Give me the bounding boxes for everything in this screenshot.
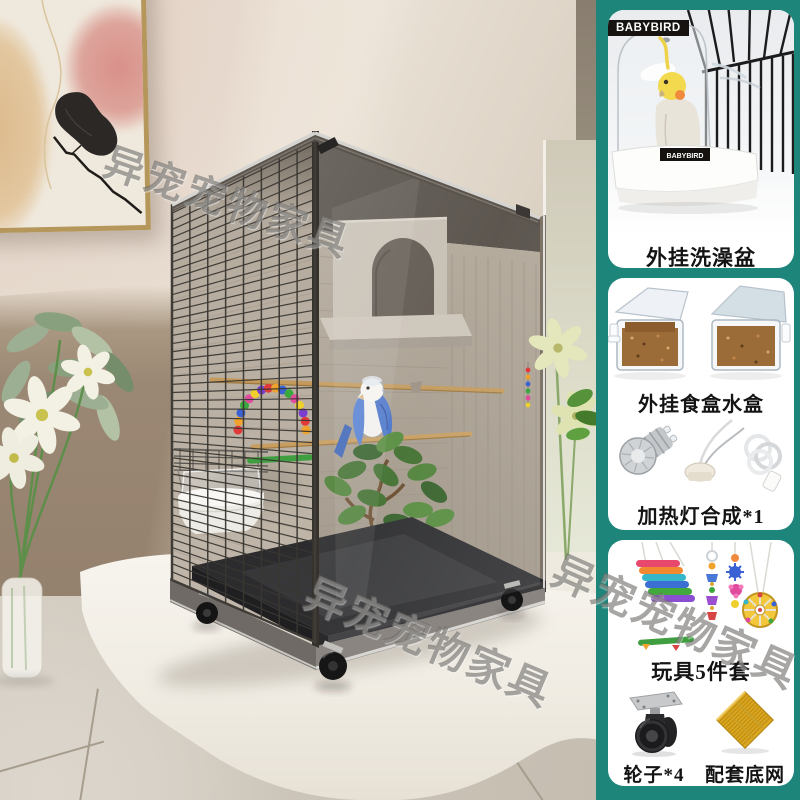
accessory-card-feeder-lamp: 外挂食盒水盒 [608, 278, 794, 530]
power-cable [746, 436, 782, 492]
caption-lamp: 加热灯合成*1 [608, 500, 794, 529]
toy-star-string [726, 554, 744, 608]
caption-feeder: 外挂食盒水盒 [608, 388, 794, 417]
caption-toys: 玩具5件套 [608, 656, 794, 686]
toys-photo [608, 542, 794, 654]
bath-box-photo: BABYBIRD [608, 10, 794, 236]
product-screenshot: 异宠宠物家具 异宠宠物家具 [0, 0, 800, 800]
heat-lamp-bulb [613, 417, 683, 481]
toy-wheel [743, 593, 777, 628]
caption-wheels: 轮子*4 [608, 760, 700, 786]
toy-bead-swing [638, 636, 694, 651]
caption-bath: 外挂洗澡盆 [608, 242, 794, 268]
caster-wheel-photo [616, 688, 692, 758]
brand-badge: BABYBIRD [608, 20, 689, 36]
feeder-boxes-photo [608, 282, 794, 386]
lamp-socket [685, 420, 744, 481]
scene-graphic [0, 0, 600, 800]
bath-brand-tag-text: BABYBIRD [667, 153, 704, 160]
toy-bell-string [706, 551, 718, 620]
accessory-panel: BABYBIRD BABYBIRD 外挂洗澡盆 [596, 0, 800, 800]
accessory-card-bath: BABYBIRD BABYBIRD 外挂洗澡盆 [608, 10, 794, 268]
bottom-mesh-photo [710, 690, 780, 756]
accessory-card-toys-parts: 玩具5件套 [608, 540, 794, 786]
toy-ladder [636, 560, 695, 602]
feeder-box-right [710, 286, 790, 380]
feeder-box-left [608, 288, 688, 380]
bird-cage [170, 131, 546, 691]
heat-lamp-photo [608, 414, 794, 496]
caption-mesh: 配套底网*1 [696, 760, 794, 786]
